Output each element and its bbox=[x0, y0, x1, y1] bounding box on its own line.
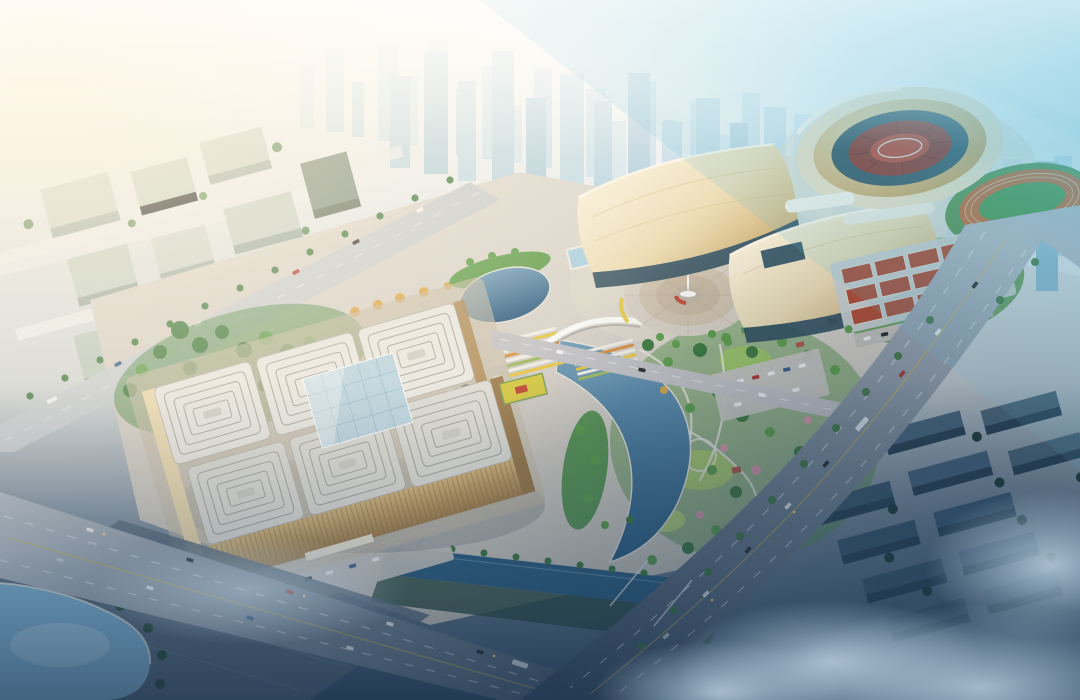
rendering-canvas bbox=[0, 0, 1080, 700]
architectural-aerial-rendering bbox=[0, 0, 1080, 700]
top-fog-overlay bbox=[0, 0, 1080, 150]
